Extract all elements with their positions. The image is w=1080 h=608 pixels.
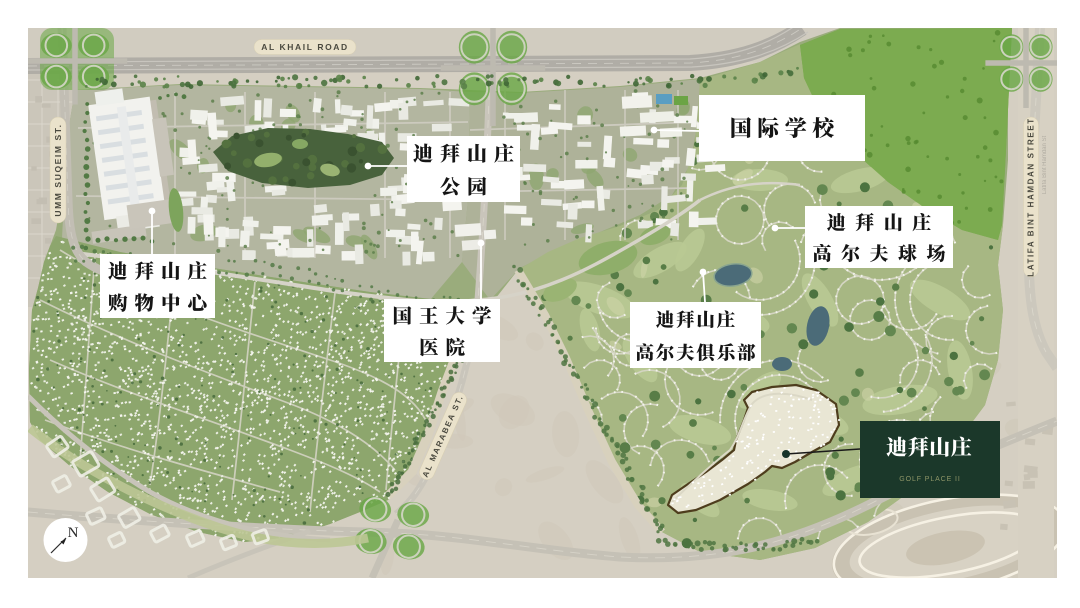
- svg-text:LATIFA BINT HAMDAN STREET: LATIFA BINT HAMDAN STREET: [1027, 117, 1036, 277]
- svg-text:N: N: [68, 525, 79, 541]
- svg-text:UMM SUQEIM ST.: UMM SUQEIM ST.: [53, 123, 63, 216]
- svg-text:AL KHAIL ROAD: AL KHAIL ROAD: [261, 42, 349, 52]
- svg-text:GOLF PLACE II: GOLF PLACE II: [899, 476, 961, 483]
- svg-text:Latifa Bint Hamdan St: Latifa Bint Hamdan St: [1042, 135, 1048, 194]
